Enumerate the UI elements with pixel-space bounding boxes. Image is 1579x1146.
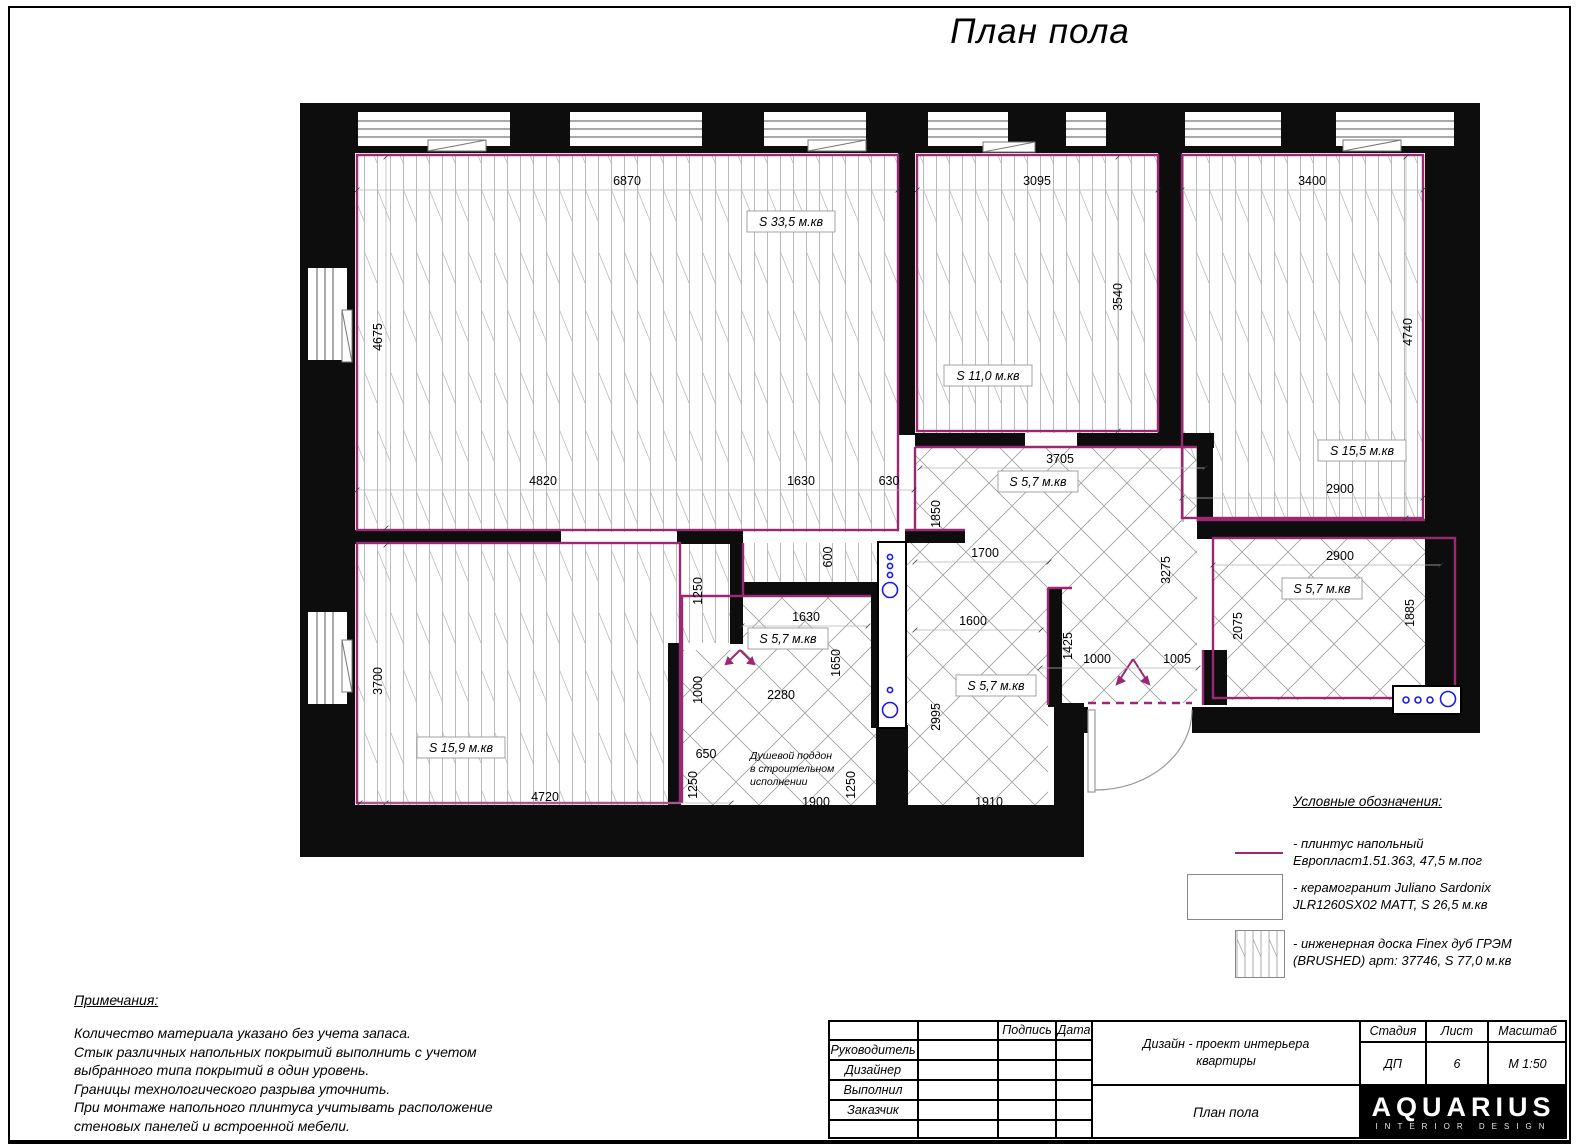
dim-label: 1900: [802, 795, 830, 809]
ceramic-swatch: [1187, 874, 1283, 920]
legend-item-plinth: - плинтус напольный Европласт1.51.363, 4…: [1293, 835, 1482, 869]
dim-label: 2995: [929, 703, 943, 731]
plumbing-shaft: [878, 542, 906, 728]
dim-label: 600: [821, 547, 835, 568]
entrance-opening: [1088, 707, 1192, 733]
legend-item-text: - плинтус напольный: [1293, 835, 1482, 852]
dim-label: 1000: [691, 676, 705, 704]
shower-note-line: в строительном: [750, 763, 834, 775]
dim-label: 1885: [1403, 599, 1417, 627]
dim-label: 4820: [529, 474, 557, 488]
dim-label: 1630: [787, 474, 815, 488]
dim-label: 3275: [1159, 556, 1173, 584]
notes: Примечания: Количество материала указано…: [74, 992, 544, 1135]
notes-line: При монтаже напольного плинтуса учитыват…: [74, 1098, 544, 1117]
dim-label: 1910: [975, 795, 1003, 809]
dim-label: 3700: [371, 667, 385, 695]
drawing-sheet: { "title": "План пола", "plan": { "dims_…: [0, 0, 1579, 1146]
plinth-line-swatch: [1235, 852, 1283, 854]
dim-label: 3705: [1046, 452, 1074, 466]
dim-label: 4720: [531, 790, 559, 804]
wood-swatch: [1235, 930, 1285, 978]
title-block: Подпись Дата Руководитель Дизайнер Выпол…: [828, 1020, 1567, 1139]
dim-label: 1250: [691, 577, 705, 605]
dim-label: 1425: [1061, 632, 1075, 660]
area-label: S 5,7 м.кв: [967, 679, 1025, 693]
area-label: S 15,5 м.кв: [1330, 444, 1395, 458]
dim-label: 1600: [959, 614, 987, 628]
legend-item-text: (BRUSHED) арт: 37746, S 77,0 м.кв: [1293, 952, 1512, 969]
dim-label: 1005: [1163, 652, 1191, 666]
legend-item-wood: - инженерная доска Finex дуб ГРЭМ (BRUSH…: [1293, 935, 1512, 969]
dim-label: 2900: [1326, 482, 1354, 496]
dim-label: 1650: [829, 649, 843, 677]
dim-label: 4675: [371, 323, 385, 351]
dim-label: 1250: [686, 771, 700, 799]
stove: [1393, 686, 1461, 714]
dim-label: 3095: [1023, 174, 1051, 188]
area-label: S 33,5 м.кв: [759, 215, 824, 229]
dim-label: 6870: [613, 174, 641, 188]
dim-label: 3540: [1111, 283, 1125, 311]
legend-item-text: - керамогранит Juliano Sardonix: [1293, 879, 1491, 896]
dim-label: 2900: [1326, 549, 1354, 563]
dim-label: 630: [879, 474, 900, 488]
dim-label: 1700: [971, 546, 999, 560]
dim-label: 2075: [1231, 612, 1245, 640]
shower-note-line: исполнении: [750, 776, 808, 788]
area-label: S 5,7 м.кв: [759, 632, 817, 646]
dim-label: 2280: [767, 688, 795, 702]
area-label: S 15,9 м.кв: [429, 741, 494, 755]
notes-line: стеновых панелей и встроенной мебели.: [74, 1117, 544, 1136]
area-label: S 5,7 м.кв: [1009, 475, 1067, 489]
dim-label: 1000: [1083, 652, 1111, 666]
notes-title: Примечания:: [74, 992, 544, 1008]
dim-label: 1250: [844, 771, 858, 799]
notes-line: Границы технологического разрыва уточнит…: [74, 1080, 544, 1099]
tb-outer-border: [828, 1020, 1567, 1139]
legend: Условные обозначения: - плинтус напольны…: [1185, 790, 1515, 990]
notes-line: выбранного типа покрытий в один уровень.: [74, 1061, 544, 1080]
shower-note-line: Душевой поддон: [749, 750, 832, 762]
dim-label: 1630: [792, 610, 820, 624]
area-label: S 11,0 м.кв: [956, 369, 1020, 383]
dim-label: 650: [696, 747, 717, 761]
dim-label: 1850: [929, 500, 943, 528]
legend-item-text: JLR1260SX02 MATT, S 26,5 м.кв: [1293, 896, 1491, 913]
dim-label: 4740: [1401, 318, 1415, 346]
legend-item-ceramic: - керамогранит Juliano Sardonix JLR1260S…: [1293, 879, 1491, 913]
dim-label: 3400: [1298, 174, 1326, 188]
legend-title: Условные обозначения:: [1293, 794, 1442, 809]
area-label: S 5,7 м.кв: [1293, 582, 1351, 596]
legend-item-text: Европласт1.51.363, 47,5 м.пог: [1293, 852, 1482, 869]
notes-line: Количество материала указано без учета з…: [74, 1024, 544, 1043]
notes-line: Стык различных напольных покрытий выполн…: [74, 1043, 544, 1062]
legend-item-text: - инженерная доска Finex дуб ГРЭМ: [1293, 935, 1512, 952]
